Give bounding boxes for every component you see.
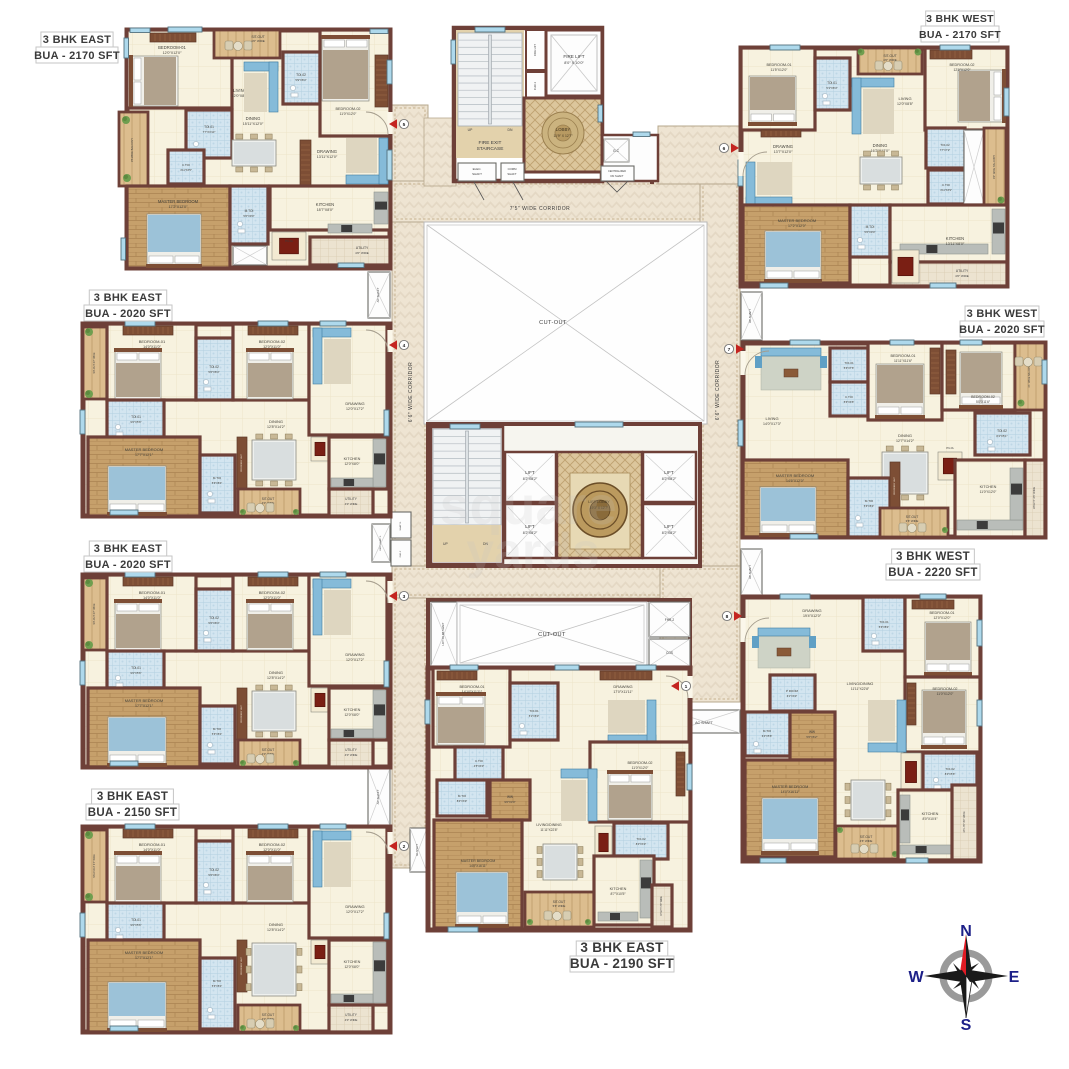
svg-text:UTILITY: UTILITY <box>956 269 969 273</box>
svg-text:FIRE LIFT: FIRE LIFT <box>563 54 584 59</box>
svg-text:KITCHEN: KITCHEN <box>344 708 361 712</box>
svg-text:14'10″X11'11″: 14'10″X11'11″ <box>462 690 483 694</box>
svg-text:CROCKERY UNIT: CROCKERY UNIT <box>241 956 243 975</box>
svg-text:5'6″X9'0″: 5'6″X9'0″ <box>864 230 875 234</box>
svg-text:AC SHAFT: AC SHAFT <box>748 565 752 579</box>
svg-text:UTILITY: UTILITY <box>356 246 369 250</box>
svg-text:4: 4 <box>403 343 406 349</box>
svg-text:14'0″X16'11″: 14'0″X16'11″ <box>781 790 800 794</box>
svg-text:BEDROOM-02: BEDROOM-02 <box>932 687 957 691</box>
svg-text:M.TOI: M.TOI <box>213 979 221 983</box>
svg-text:M.TOI: M.TOI <box>213 727 221 731</box>
svg-text:BUA - 2150 SFT: BUA - 2150 SFT <box>88 807 177 819</box>
svg-text:14'0″X16'11″: 14'0″X16'11″ <box>469 864 487 868</box>
svg-text:12'0″X11'0″: 12'0″X11'0″ <box>263 596 281 600</box>
svg-text:LIVING: LIVING <box>765 416 778 421</box>
svg-text:8’2″X8’2″: 8’2″X8’2″ <box>662 477 677 481</box>
svg-text:BEDROOM-02: BEDROOM-02 <box>259 339 286 344</box>
svg-text:C.TOI: C.TOI <box>475 759 483 763</box>
svg-text:5'6″X7'6″: 5'6″X7'6″ <box>844 366 855 370</box>
svg-text:WW: WW <box>507 795 513 799</box>
svg-text:8'4″X3'9″: 8'4″X3'9″ <box>457 799 468 803</box>
svg-text:N: N <box>960 923 972 940</box>
svg-text:TOI-02: TOI-02 <box>945 767 955 771</box>
svg-text:DRAWING: DRAWING <box>345 401 364 406</box>
svg-text:3 BHK EAST: 3 BHK EAST <box>97 791 168 803</box>
svg-text:M.TOI: M.TOI <box>866 225 875 229</box>
svg-text:6: 6 <box>723 146 726 152</box>
svg-text:4'0″ WIDE BALCONY: 4'0″ WIDE BALCONY <box>993 155 996 179</box>
svg-text:14'0″X11'0″: 14'0″X11'0″ <box>143 345 161 349</box>
svg-text:KITCHEN: KITCHEN <box>610 887 627 891</box>
svg-text:LIFT: LIFT <box>664 470 674 475</box>
svg-text:CROCKERY UNIT: CROCKERY UNIT <box>241 704 243 723</box>
svg-text:C.TOI: C.TOI <box>845 395 853 399</box>
svg-text:9'0″X5'6″: 9'0″X5'6″ <box>130 671 141 675</box>
svg-text:BEDROOM-02: BEDROOM-02 <box>259 842 286 847</box>
svg-text:SHAFT: SHAFT <box>472 172 482 176</box>
svg-text:BUA - 2190 SFT: BUA - 2190 SFT <box>570 956 675 971</box>
svg-text:11'0″X12'0″: 11'0″X12'0″ <box>632 766 650 770</box>
svg-text:3 BHK WEST: 3 BHK WEST <box>896 551 970 563</box>
svg-text:AC SHAFT: AC SHAFT <box>376 287 380 302</box>
svg-text:12'0″X17'2″: 12'0″X17'2″ <box>346 910 365 914</box>
svg-text:13'7″X12'0″: 13'7″X12'0″ <box>774 150 793 154</box>
svg-text:BEDROOM-02: BEDROOM-02 <box>971 395 995 399</box>
svg-text:3'6″ WIDE: 3'6″ WIDE <box>906 519 919 523</box>
svg-text:KITCHEN: KITCHEN <box>316 202 334 207</box>
svg-text:STEP-OUT 3'7″ WIDE: STEP-OUT 3'7″ WIDE <box>93 854 96 878</box>
svg-text:5'6″X3'6″: 5'6″X3'6″ <box>844 400 855 404</box>
svg-text:COS: COS <box>666 651 673 655</box>
svg-text:12'0″X8'0″: 12'0″X8'0″ <box>344 965 360 969</box>
svg-text:4'0″ WIDE: 4'0″ WIDE <box>345 753 358 757</box>
svg-text:KITCHEN: KITCHEN <box>980 485 997 489</box>
svg-text:BUA - 2020 SFT: BUA - 2020 SFT <box>959 324 1045 336</box>
svg-text:TOI-02: TOI-02 <box>209 868 219 872</box>
svg-text:PUJA: PUJA <box>946 446 953 450</box>
svg-text:BEDROOM-01: BEDROOM-01 <box>139 590 166 595</box>
svg-text:BEDROOM-02: BEDROOM-02 <box>949 63 974 67</box>
svg-text:DRAWING: DRAWING <box>802 608 821 613</box>
svg-text:2: 2 <box>403 844 406 850</box>
svg-text:14'6″X12'0″: 14'6″X12'0″ <box>786 479 805 483</box>
svg-text:3 BHK WEST: 3 BHK WEST <box>926 13 994 25</box>
svg-text:9'0″X5'6″: 9'0″X5'6″ <box>130 923 141 927</box>
svg-text:CENTRALIZED: CENTRALIZED <box>608 169 626 173</box>
svg-text:LIFT: LIFT <box>525 470 535 475</box>
svg-text:FIRE EXIT: FIRE EXIT <box>479 140 502 146</box>
svg-text:TOI-02: TOI-02 <box>296 73 306 77</box>
svg-text:12'0″X8'0″: 12'0″X8'0″ <box>344 713 360 717</box>
svg-text:BEDROOM-01: BEDROOM-01 <box>890 354 915 358</box>
svg-text:5'1″X8'4″: 5'1″X8'4″ <box>826 86 837 90</box>
svg-text:11'0″X12'0″: 11'0″X12'0″ <box>340 112 358 116</box>
svg-text:6’6″ WIDE CORRIDOR: 6’6″ WIDE CORRIDOR <box>715 360 721 421</box>
svg-text:4'6″ WIDE: 4'6″ WIDE <box>860 839 873 843</box>
svg-text:5'1″X8'9″: 5'1″X8'9″ <box>529 714 540 718</box>
svg-text:UTILITY 3'6″ WIDE: UTILITY 3'6″ WIDE <box>661 896 663 916</box>
svg-text:SIT-OUT 3'7″ WIDE: SIT-OUT 3'7″ WIDE <box>93 352 96 373</box>
svg-text:TOI-01: TOI-01 <box>131 415 141 419</box>
svg-text:8'0″X10'4″: 8'0″X10'4″ <box>922 817 938 821</box>
svg-text:LIFT: LIFT <box>664 524 674 529</box>
svg-text:BEDROOM-01: BEDROOM-01 <box>459 685 484 689</box>
svg-text:BEDROOM-01: BEDROOM-01 <box>766 63 791 67</box>
svg-text:11'0″X12'0″: 11'0″X12'0″ <box>937 692 955 696</box>
svg-text:TOI-02: TOI-02 <box>636 837 646 841</box>
svg-text:PUJA: PUJA <box>285 239 293 243</box>
svg-text:6'4″X5'6″: 6'4″X5'6″ <box>762 734 773 738</box>
svg-text:MASTER BEDROOM: MASTER BEDROOM <box>461 859 496 863</box>
svg-text:AC SHAFT: AC SHAFT <box>416 844 419 856</box>
svg-text:3 BHK EAST: 3 BHK EAST <box>43 34 111 46</box>
svg-text:TOI-02: TOI-02 <box>997 429 1007 433</box>
svg-text:DRAWING: DRAWING <box>773 144 793 149</box>
svg-text:18'7″X8'0″: 18'7″X8'0″ <box>317 208 334 212</box>
svg-text:LIVING/DINING: LIVING/DINING <box>536 823 562 827</box>
svg-text:11’9″ X 12’7″: 11’9″ X 12’7″ <box>553 134 573 138</box>
svg-text:DINING: DINING <box>246 116 261 121</box>
svg-text:6’6″ WIDE CORRIDOR: 6’6″ WIDE CORRIDOR <box>408 362 414 423</box>
svg-text:DINING: DINING <box>269 670 283 675</box>
svg-text:4'11″X3'9″: 4'11″X3'9″ <box>940 188 952 192</box>
svg-text:5'6″X8'4″: 5'6″X8'4″ <box>208 370 219 374</box>
svg-text:13'11″X12'0″: 13'11″X12'0″ <box>317 155 338 159</box>
svg-text:TOI-01: TOI-01 <box>844 361 854 365</box>
svg-text:5: 5 <box>403 122 406 128</box>
svg-text:5'6″X8'4″: 5'6″X8'4″ <box>212 984 223 988</box>
svg-text:13'11″X8'0″: 13'11″X8'0″ <box>946 242 965 246</box>
svg-text:TOI-01: TOI-01 <box>879 620 889 624</box>
svg-text:12'0″X11'0″: 12'0″X11'0″ <box>263 345 281 349</box>
svg-text:MASTER BEDROOM: MASTER BEDROOM <box>158 199 199 204</box>
svg-text:UTILITY: UTILITY <box>345 748 358 752</box>
svg-text:12'0″X12'0″: 12'0″X12'0″ <box>163 51 182 55</box>
svg-text:AC SHAFT: AC SHAFT <box>748 309 752 323</box>
svg-text:E: E <box>1009 969 1020 986</box>
svg-text:COMM: COMM <box>508 167 518 171</box>
svg-text:3'6 WIDE BALCONY: 3'6 WIDE BALCONY <box>130 138 134 162</box>
svg-text:8'4″X3'9″: 8'4″X3'9″ <box>636 842 647 846</box>
svg-text:12'8″X14'2″: 12'8″X14'2″ <box>267 676 286 680</box>
svg-text:5'6″X8'4″: 5'6″X8'4″ <box>864 504 875 508</box>
svg-text:7'7″X7'2″: 7'7″X7'2″ <box>940 148 951 152</box>
svg-text:MASTER BEDROOM: MASTER BEDROOM <box>772 785 809 789</box>
svg-text:UP: UP <box>468 128 473 132</box>
svg-text:MASTER BEDROOM: MASTER BEDROOM <box>125 950 163 955</box>
svg-text:12'0″X12'0″: 12'0″X12'0″ <box>954 68 972 72</box>
svg-text:5'0″X11'6″: 5'0″X11'6″ <box>976 400 991 404</box>
svg-text:9'0″X3'9″: 9'0″X3'9″ <box>504 800 515 804</box>
svg-text:UP: UP <box>443 542 448 546</box>
svg-text:4'0″ WIDE: 4'0″ WIDE <box>345 502 358 506</box>
svg-text:KITCHEN: KITCHEN <box>344 457 361 461</box>
svg-text:TOI-01: TOI-01 <box>131 918 141 922</box>
svg-text:M.TOI: M.TOI <box>213 476 221 480</box>
svg-text:W: W <box>908 969 924 986</box>
svg-text:5'6″ WIDE: 5'6″ WIDE <box>553 904 566 908</box>
svg-text:BEDROOM-02: BEDROOM-02 <box>259 590 286 595</box>
svg-text:UTILITY 4'0″ WIDE: UTILITY 4'0″ WIDE <box>963 811 966 833</box>
svg-text:4'11″X3'5″: 4'11″X3'5″ <box>180 168 192 172</box>
svg-text:17'7″X12'1″: 17'7″X12'1″ <box>135 453 154 457</box>
svg-text:5'6″X6'2″: 5'6″X6'2″ <box>806 735 817 739</box>
svg-text:CROCKERY UNIT: CROCKERY UNIT <box>241 453 243 472</box>
svg-text:BEDROOM-02: BEDROOM-02 <box>335 107 360 111</box>
svg-text:12'7″X14'2″: 12'7″X14'2″ <box>896 439 915 443</box>
svg-text:CUT-OUT: CUT-OUT <box>538 632 566 638</box>
svg-text:7: 7 <box>728 347 731 353</box>
svg-text:UTILITY: UTILITY <box>345 1013 358 1017</box>
svg-text:C.TOI: C.TOI <box>182 163 190 167</box>
svg-text:5'9″X8'4″: 5'9″X8'4″ <box>295 78 306 82</box>
svg-text:CROCKERY UNIT: CROCKERY UNIT <box>894 476 896 495</box>
svg-text:TOI-01: TOI-01 <box>204 125 214 129</box>
svg-text:12'8″X14'2″: 12'8″X14'2″ <box>267 928 286 932</box>
svg-text:DRAWING: DRAWING <box>613 684 632 689</box>
svg-text:7'7″X3'10″: 7'7″X3'10″ <box>203 130 216 134</box>
svg-text:KITCHEN: KITCHEN <box>344 960 361 964</box>
svg-text:12'8″X14'2″: 12'8″X14'2″ <box>267 425 286 429</box>
svg-text:MASTER BEDROOM: MASTER BEDROOM <box>778 218 816 223</box>
svg-text:DN: DN <box>508 128 513 132</box>
svg-text:17'2″X12'0″: 17'2″X12'0″ <box>169 205 188 209</box>
svg-text:DINING: DINING <box>873 143 888 148</box>
svg-text:C.TOI: C.TOI <box>942 183 950 187</box>
svg-text:AC SHAFT: AC SHAFT <box>695 721 714 725</box>
svg-text:BUA - 2170 SFT: BUA - 2170 SFT <box>919 29 1001 41</box>
svg-text:M.TOI: M.TOI <box>865 499 873 503</box>
svg-text:MASTER BEDROOM: MASTER BEDROOM <box>125 447 163 452</box>
svg-text:DRAWING: DRAWING <box>345 652 364 657</box>
svg-text:1: 1 <box>685 684 688 690</box>
svg-text:BEDROOM-01: BEDROOM-01 <box>929 611 954 615</box>
svg-text:3: 3 <box>403 594 406 600</box>
svg-text:BUA - 2170 SFT: BUA - 2170 SFT <box>34 50 120 62</box>
svg-text:4'0″ WIDE: 4'0″ WIDE <box>955 274 969 278</box>
svg-text:5'6″X8'4″: 5'6″X8'4″ <box>208 873 219 877</box>
svg-text:KITCHEN: KITCHEN <box>922 812 939 816</box>
svg-text:5'6″X8'4″: 5'6″X8'4″ <box>212 732 223 736</box>
svg-text:8’2″X8’2″: 8’2″X8’2″ <box>662 531 677 535</box>
svg-text:MASTER BEDROOM: MASTER BEDROOM <box>125 698 163 703</box>
svg-text:6'1″X3'9″: 6'1″X3'9″ <box>787 694 798 698</box>
svg-text:4'1″ WIDE BALCONY: 4'1″ WIDE BALCONY <box>1028 364 1031 387</box>
svg-text:SIT-OUT 3'7″ WIDE: SIT-OUT 3'7″ WIDE <box>93 603 96 624</box>
svg-text:LIVING/DINING: LIVING/DINING <box>847 682 874 686</box>
svg-text:11'11″X11'6″: 11'11″X11'6″ <box>894 359 913 363</box>
svg-text:4'0″ WIDE: 4'0″ WIDE <box>251 39 265 43</box>
svg-text:5'6″X8'4″: 5'6″X8'4″ <box>212 481 223 485</box>
svg-text:LIFT SH KB SHAFT: LIFT SH KB SHAFT <box>441 622 445 645</box>
svg-text:DRAWING: DRAWING <box>345 904 364 909</box>
svg-text:12'0″X17'2″: 12'0″X17'2″ <box>346 407 365 411</box>
svg-text:17'7″X12'1″: 17'7″X12'1″ <box>135 704 154 708</box>
svg-text:5'6″X8'4″: 5'6″X8'4″ <box>208 621 219 625</box>
svg-text:TOI-02: TOI-02 <box>209 365 219 369</box>
svg-text:S: S <box>961 1017 972 1034</box>
svg-text:TOI-01: TOI-01 <box>529 709 539 713</box>
svg-text:11'11″X22'8″: 11'11″X22'8″ <box>540 828 558 832</box>
svg-text:3 BHK EAST: 3 BHK EAST <box>94 292 162 304</box>
svg-text:WW: WW <box>809 730 815 734</box>
svg-text:FHR-2: FHR-2 <box>400 550 402 557</box>
svg-text:17'0″X11'11″: 17'0″X11'11″ <box>613 690 633 694</box>
svg-text:KITCHEN: KITCHEN <box>946 236 964 241</box>
svg-text:5'6″X8'4″: 5'6″X8'4″ <box>879 625 890 629</box>
svg-text:BEDROOM-02: BEDROOM-02 <box>627 761 652 765</box>
svg-text:12'0″X8'0″: 12'0″X8'0″ <box>344 462 360 466</box>
svg-text:11'11″X22'8″: 11'11″X22'8″ <box>851 687 870 691</box>
svg-text:M.TOI: M.TOI <box>245 209 254 213</box>
svg-text:12'0″X17'2″: 12'0″X17'2″ <box>346 658 365 662</box>
svg-text:G.C: G.C <box>613 149 620 153</box>
svg-text:SHAFT-1: SHAFT-1 <box>399 521 402 531</box>
svg-text:TOI-01: TOI-01 <box>827 81 837 85</box>
svg-text:DINING: DINING <box>269 419 283 424</box>
svg-text:LOBBY: LOBBY <box>556 127 571 132</box>
svg-text:P ROOM: P ROOM <box>786 689 799 693</box>
svg-text:BEDROOM-01: BEDROOM-01 <box>139 842 166 847</box>
svg-text:DRAWING: DRAWING <box>317 149 337 154</box>
svg-text:FHR-2: FHR-2 <box>665 618 675 622</box>
svg-text:TOI-02: TOI-02 <box>940 143 950 147</box>
svg-text:17'2″X12'0″: 17'2″X12'0″ <box>788 224 807 228</box>
svg-text:14'0″X11'0″: 14'0″X11'0″ <box>143 596 161 600</box>
svg-text:BEDROOM-01: BEDROOM-01 <box>158 45 186 50</box>
svg-text:3 BHK WEST: 3 BHK WEST <box>967 308 1038 320</box>
svg-text:DINING: DINING <box>898 433 912 438</box>
svg-text:12'0″X8'8″: 12'0″X8'8″ <box>897 102 914 106</box>
svg-text:BEDROOM-01: BEDROOM-01 <box>139 339 166 344</box>
svg-text:8’0″ X 10’0″: 8’0″ X 10’0″ <box>564 61 584 65</box>
svg-text:AC SHAFT: AC SHAFT <box>376 789 380 804</box>
svg-text:3 BHK EAST: 3 BHK EAST <box>94 543 162 555</box>
svg-text:DINING: DINING <box>269 922 283 927</box>
svg-text:M.TOI: M.TOI <box>763 729 771 733</box>
svg-text:4'0″ WIDE: 4'0″ WIDE <box>345 1018 358 1022</box>
svg-text:8: 8 <box>726 614 729 620</box>
svg-text:8'4″X5'1″: 8'4″X5'1″ <box>996 434 1007 438</box>
svg-text:UTILITY 4'5″ WIDE: UTILITY 4'5″ WIDE <box>1032 487 1036 509</box>
svg-text:TOI-01: TOI-01 <box>131 666 141 670</box>
svg-text:FIRE LIFT: FIRE LIFT <box>533 44 537 56</box>
svg-text:yards: yards <box>466 523 599 579</box>
svg-text:4'0″ WIDE: 4'0″ WIDE <box>355 251 369 255</box>
svg-text:4'5″X3'9″: 4'5″X3'9″ <box>474 764 485 768</box>
svg-text:TOI-02: TOI-02 <box>209 616 219 620</box>
svg-text:7’5″ WIDE CORRIDOR: 7’5″ WIDE CORRIDOR <box>510 206 571 212</box>
svg-text:15'11″X12'0″: 15'11″X12'0″ <box>243 122 264 126</box>
svg-text:BUA - 2020 SFT: BUA - 2020 SFT <box>85 308 171 320</box>
svg-text:17'7″X12'1″: 17'7″X12'1″ <box>135 956 154 960</box>
svg-text:DN SHAFT: DN SHAFT <box>611 174 624 178</box>
svg-text:8'4″X5'6″: 8'4″X5'6″ <box>945 772 956 776</box>
svg-text:9'0″X5'6″: 9'0″X5'6″ <box>130 420 141 424</box>
svg-text:14'0″X11'0″: 14'0″X11'0″ <box>143 848 161 852</box>
svg-text:BUA - 2220 SFT: BUA - 2220 SFT <box>888 567 977 579</box>
svg-text:KIRC SHAFT-1: KIRC SHAFT-1 <box>379 535 382 551</box>
svg-text:FHR-1: FHR-1 <box>533 81 537 90</box>
svg-text:8'7″X10'5″: 8'7″X10'5″ <box>610 892 626 896</box>
svg-text:19'4″X12'0″: 19'4″X12'0″ <box>803 614 822 618</box>
svg-text:14'0″X17'3″: 14'0″X17'3″ <box>763 422 782 426</box>
svg-text:BUA - 2020 SFT: BUA - 2020 SFT <box>85 559 171 571</box>
svg-text:LIVING: LIVING <box>898 96 911 101</box>
svg-text:UTILITY: UTILITY <box>345 497 358 501</box>
svg-text:11'0″X12'0″: 11'0″X12'0″ <box>980 490 998 494</box>
svg-text:11'5″X12'0″: 11'5″X12'0″ <box>771 68 789 72</box>
svg-text:12'0″X12'0″: 12'0″X12'0″ <box>934 616 952 620</box>
svg-text:STAIRCASE: STAIRCASE <box>477 146 504 152</box>
svg-text:ELEC.: ELEC. <box>473 167 482 171</box>
svg-text:12'0″X11'0″: 12'0″X11'0″ <box>263 848 281 852</box>
svg-text:M.TOI: M.TOI <box>458 794 466 798</box>
svg-text:SHAFT: SHAFT <box>507 172 516 176</box>
svg-text:MASTER BEDROOM: MASTER BEDROOM <box>776 473 814 478</box>
svg-text:3 BHK EAST: 3 BHK EAST <box>580 940 664 955</box>
svg-text:CUT-OUT: CUT-OUT <box>539 320 567 326</box>
svg-text:5'6″X9'0″: 5'6″X9'0″ <box>243 214 254 218</box>
